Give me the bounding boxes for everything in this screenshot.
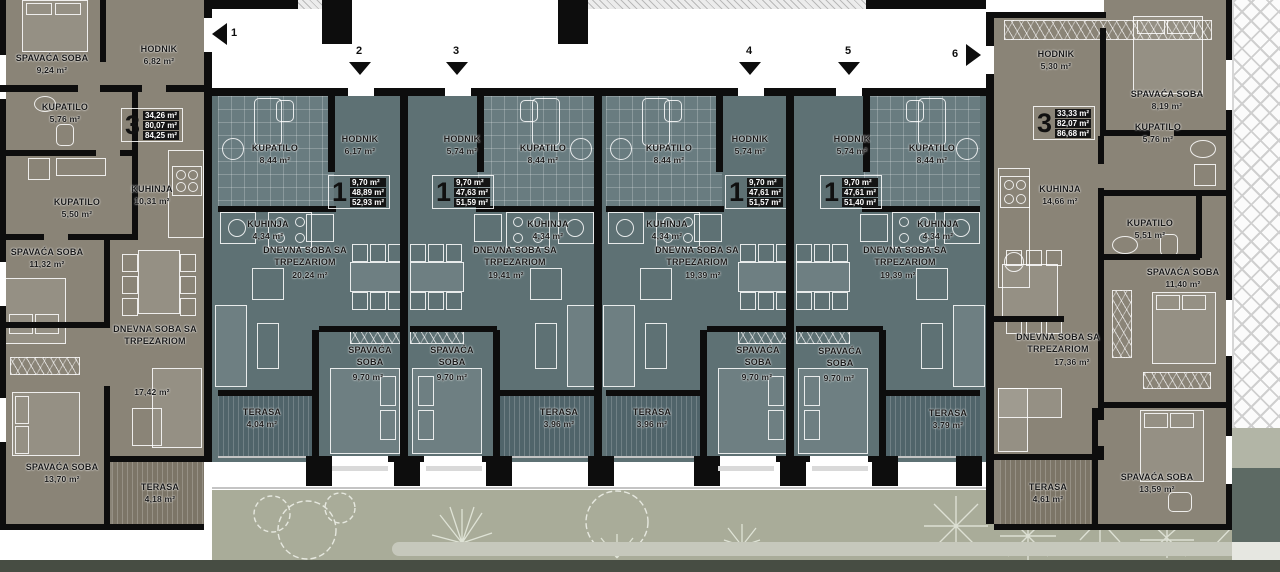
- wall: [994, 316, 1064, 322]
- chair-furniture: [796, 292, 812, 310]
- chair-furniture: [446, 292, 462, 310]
- door-opening: [986, 46, 994, 74]
- dining-table-furniture: [350, 262, 404, 292]
- marker-arrow-2: [349, 62, 371, 75]
- chair-furniture: [370, 244, 386, 262]
- balcony-pillar: [306, 456, 332, 486]
- wall: [994, 454, 1096, 460]
- chair-furniture: [352, 292, 368, 310]
- marker-number: 2: [356, 45, 362, 57]
- balcony-pillar: [588, 456, 614, 486]
- wall: [986, 12, 994, 524]
- vanity-furniture: [56, 158, 106, 176]
- wall: [994, 12, 1106, 18]
- dining-table-furniture: [410, 262, 464, 292]
- window: [424, 456, 482, 462]
- wall: [866, 0, 986, 9]
- room-label-bedroom: SPAVAĆA SOBA: [422, 344, 482, 368]
- room-label-bedroom: SPAVAĆA SOBA11,40 m²: [1138, 266, 1228, 290]
- room-label-hallway: HODNIK6,82 m²: [114, 43, 204, 67]
- wall: [104, 240, 110, 328]
- toilet-furniture: [276, 100, 294, 122]
- chair-furniture: [758, 244, 774, 262]
- terrace-edge: [606, 456, 706, 458]
- pillow-furniture: [768, 410, 784, 440]
- dining-table-furniture: [138, 250, 180, 314]
- chair-furniture: [796, 244, 812, 262]
- marker-arrow-6: [966, 44, 981, 66]
- marker-number: 4: [746, 45, 752, 57]
- wall: [312, 330, 319, 462]
- room-label-bathroom: KUPATILO5,51 m²: [1105, 217, 1195, 241]
- bed-furniture: [4, 278, 66, 344]
- window: [1226, 436, 1232, 484]
- chair-furniture: [814, 244, 830, 262]
- wall: [1092, 408, 1098, 530]
- chair-furniture: [758, 292, 774, 310]
- room-label-kitchen: KUHINJA4,34 m²: [622, 218, 712, 242]
- unit-type-badge: 1 9,70 m²47,63 m²51,59 m²: [432, 175, 494, 209]
- marker-arrow-3: [446, 62, 468, 75]
- door-opening: [1098, 420, 1104, 446]
- fridge-furniture: [474, 214, 502, 242]
- chair-furniture: [122, 276, 138, 294]
- room-label-bedroom: SPAVAĆA SOBA13,59 m²: [1112, 471, 1202, 495]
- wall: [994, 524, 1232, 530]
- chair-furniture: [740, 292, 756, 310]
- dining-table-furniture: [796, 262, 850, 292]
- room-label-kitchen: KUHINJA4,34 m²: [223, 218, 313, 242]
- room-label-terrace: TERASA4,04 m²: [217, 406, 307, 430]
- pillow-furniture: [418, 410, 434, 440]
- window: [1226, 300, 1232, 356]
- room-label-bedroom: SPAVAĆA SOBA: [340, 344, 400, 368]
- wall: [606, 206, 724, 212]
- room-label-living: DNEVNA SOBA SA TRPEZARIOM: [1008, 331, 1108, 355]
- room-label-bathroom: KUPATILO8,44 m²: [230, 142, 320, 166]
- window-sill: [812, 466, 868, 471]
- unit-type-badge: 1 9,70 m²47,61 m²51,57 m²: [725, 175, 787, 209]
- wall: [410, 326, 497, 332]
- chair-furniture: [1026, 250, 1042, 266]
- pillow-furniture: [1144, 413, 1168, 428]
- window: [330, 456, 388, 462]
- wall: [494, 390, 594, 396]
- toilet-furniture: [56, 124, 74, 146]
- room-label-living: DNEVNA SOBA SA TRPEZARIOM: [863, 244, 947, 268]
- wall: [218, 206, 336, 212]
- wall: [212, 0, 298, 9]
- balcony-pillar: [486, 456, 512, 486]
- room-label-terrace: TERASA3,96 m²: [514, 406, 604, 430]
- room-label-bathroom: KUPATILO5,50 m²: [32, 196, 122, 220]
- room-label-bedroom: SPAVAĆA SOBA13,70 m²: [17, 461, 107, 485]
- wall: [0, 85, 204, 92]
- chair-furniture: [410, 244, 426, 262]
- wall: [1098, 254, 1200, 260]
- pillow-furniture: [1167, 20, 1195, 34]
- washing-machine-furniture: [1194, 164, 1216, 186]
- room-label-living: DNEVNA SOBA SA TRPEZARIOM: [473, 244, 557, 268]
- coffee-table-furniture: [535, 323, 557, 369]
- wall: [493, 330, 500, 462]
- marker-arrow-4: [739, 62, 761, 75]
- wall: [1104, 190, 1232, 196]
- chair-furniture: [122, 254, 138, 272]
- wall: [700, 330, 707, 462]
- room-area-living: 17,42 m²: [107, 386, 197, 398]
- terrace-edge: [218, 456, 318, 458]
- window: [718, 456, 776, 462]
- unit-type-number: 3: [1037, 108, 1052, 138]
- garden-path: [392, 542, 1280, 556]
- unit-type-badge: 1 9,70 m²47,61 m²51,40 m²: [820, 175, 882, 209]
- pillow-furniture: [15, 396, 29, 424]
- marker-number: 1: [231, 27, 237, 39]
- exterior-notch: [994, 0, 1104, 12]
- room-label-bathroom: KUPATILO8,44 m²: [624, 142, 714, 166]
- marker-arrow-5: [838, 62, 860, 75]
- unit-type-number: 1: [436, 177, 451, 207]
- wardrobe-furniture: [10, 357, 80, 375]
- room-area-bedroom: 9,70 m²: [794, 372, 884, 384]
- room-area-living: 17,36 m²: [1027, 356, 1117, 368]
- wall: [218, 390, 318, 396]
- wall: [0, 234, 138, 240]
- chair-furniture: [428, 292, 444, 310]
- pillow-furniture: [1137, 20, 1165, 34]
- marker-number: 3: [453, 45, 459, 57]
- wall: [400, 88, 408, 462]
- wall: [322, 0, 352, 44]
- window: [810, 456, 868, 462]
- wall: [880, 390, 980, 396]
- wall: [796, 326, 883, 332]
- room-label-bedroom: SPAVAĆA SOBA: [728, 344, 788, 368]
- balcony-pillar: [956, 456, 982, 486]
- door-opening: [348, 88, 374, 96]
- room-label-living: DNEVNA SOBA SA TRPEZARIOM: [655, 244, 739, 268]
- balcony-pillar: [694, 456, 720, 486]
- chair-furniture: [446, 244, 462, 262]
- chair-furniture: [740, 244, 756, 262]
- wall: [110, 456, 204, 462]
- wall: [558, 0, 588, 44]
- room-label-bathroom: KUPATILO8,44 m²: [887, 142, 977, 166]
- room-label-hallway: HODNIK6,17 m²: [315, 133, 405, 157]
- window-sill: [718, 466, 774, 471]
- coffee-table-furniture: [257, 323, 279, 369]
- room-area-living: 19,39 m²: [658, 269, 748, 281]
- room-label-living: DNEVNA SOBA SA TRPEZARIOM: [105, 323, 205, 347]
- room-label-hallway: HODNIK5,74 m²: [417, 133, 507, 157]
- wall: [1196, 196, 1202, 258]
- dining-table-furniture: [1002, 264, 1058, 318]
- chair-furniture: [1046, 250, 1062, 266]
- chair-furniture: [180, 298, 196, 316]
- ground-strip: [0, 560, 1280, 572]
- pillow-furniture: [55, 3, 81, 15]
- room-label-bathroom: KUPATILO8,44 m²: [498, 142, 588, 166]
- door-opening: [738, 88, 764, 96]
- unit-type-badge: 3 33,33 m²82,07 m²86,68 m²: [1033, 106, 1095, 140]
- side-lawn-block: [1232, 428, 1280, 468]
- wall: [319, 326, 406, 332]
- sofa-furniture: [998, 388, 1028, 452]
- room-label-bedroom: SPAVAĆA SOBA9,24 m²: [2, 52, 102, 76]
- room-label-kitchen: KUHINJA4,34 m²: [503, 218, 593, 242]
- room-label-living: DNEVNA SOBA SA TRPEZARIOM: [263, 244, 347, 268]
- room-label-bedroom: SPAVAĆA SOBA8,19 m²: [1122, 88, 1212, 112]
- fridge-furniture: [860, 214, 888, 242]
- chair-furniture: [122, 298, 138, 316]
- pillow-furniture: [26, 3, 52, 15]
- room-label-bedroom: SPAVAĆA SOBA11,32 m²: [0, 246, 94, 270]
- room-label-hallway: HODNIK5,30 m²: [1011, 48, 1101, 72]
- wall: [0, 322, 110, 328]
- room-label-terrace: TERASA3,79 m²: [903, 407, 993, 431]
- room-area-bedroom: 9,70 m²: [407, 371, 497, 383]
- pillow-furniture: [1156, 295, 1180, 310]
- coffee-table-furniture: [921, 323, 943, 369]
- sofa-furniture: [953, 305, 985, 387]
- door-opening: [836, 88, 862, 96]
- wall: [879, 330, 886, 462]
- balcony-rail: [212, 487, 986, 489]
- pillow-furniture: [1182, 295, 1206, 310]
- marker-number: 6: [952, 48, 958, 60]
- sofa-furniture: [215, 305, 247, 387]
- door-opening: [204, 18, 212, 52]
- pillow-furniture: [380, 410, 396, 440]
- chair-furniture: [814, 292, 830, 310]
- sofa-furniture: [603, 305, 635, 387]
- washing-machine-furniture: [28, 158, 50, 180]
- unit-type-number: 1: [729, 177, 744, 207]
- wardrobe-furniture: [1143, 372, 1211, 389]
- pillow-furniture: [804, 410, 820, 440]
- window: [1226, 60, 1232, 110]
- entrance-alcove: [352, 0, 558, 40]
- window-sill: [426, 466, 482, 471]
- desk-furniture: [1168, 492, 1192, 512]
- room-label-hallway: HODNIK5,74 m²: [705, 133, 795, 157]
- room-area-living: 19,41 m²: [461, 269, 551, 281]
- door-opening: [445, 88, 471, 96]
- door-opening: [44, 234, 68, 240]
- room-label-hallway: HODNIK5,74 m²: [807, 133, 897, 157]
- door-opening: [78, 85, 100, 92]
- chair-furniture: [832, 292, 848, 310]
- room-label-bathroom: KUPATILO5,76 m²: [1113, 121, 1203, 145]
- room-area-living: 19,39 m²: [853, 269, 943, 281]
- unit-type-badge: 1 9,70 m²48,89 m²52,93 m²: [328, 175, 390, 209]
- floor-plan: SPAVAĆA SOBA9,24 m² HODNIK6,82 m² KUPATI…: [0, 0, 1280, 572]
- room-label-terrace: TERASA3,96 m²: [607, 406, 697, 430]
- side-dark-block: [1232, 468, 1280, 542]
- unit-type-number: 1: [824, 177, 839, 207]
- side-light-block: [1232, 542, 1280, 560]
- unit-type-number: 3: [125, 110, 140, 140]
- door-opening: [96, 150, 120, 156]
- chair-furniture: [180, 276, 196, 294]
- wardrobe-furniture: [1112, 290, 1132, 358]
- unit-type-number: 1: [332, 177, 347, 207]
- room-label-bathroom: KUPATILO5,76 m²: [20, 101, 110, 125]
- armchair-furniture: [132, 408, 162, 446]
- door-opening: [142, 85, 166, 92]
- coffee-table-furniture: [645, 323, 667, 369]
- wall: [204, 0, 212, 462]
- wall: [0, 524, 204, 530]
- toilet-furniture: [520, 100, 538, 122]
- balcony-pillar: [780, 456, 806, 486]
- pillow-furniture: [15, 426, 29, 454]
- chair-furniture: [370, 292, 386, 310]
- room-label-kitchen: KUHINJA4,34 m²: [893, 218, 983, 242]
- room-label-kitchen: KUHINJA14,66 m²: [1015, 183, 1105, 207]
- marker-number: 5: [845, 45, 851, 57]
- balcony-pillar: [394, 456, 420, 486]
- toilet-furniture: [906, 100, 924, 122]
- room-label-terrace: TERASA4,18 m²: [115, 481, 205, 505]
- chair-furniture: [832, 244, 848, 262]
- chair-furniture: [1006, 250, 1022, 266]
- chair-furniture: [428, 244, 444, 262]
- wall: [594, 88, 602, 462]
- room-label-terrace: TERASA4,61 m²: [1003, 481, 1093, 505]
- wall: [786, 88, 794, 462]
- wall: [707, 326, 794, 332]
- window: [0, 398, 6, 442]
- marker-arrow-1: [212, 23, 227, 45]
- wall: [606, 390, 706, 396]
- paving-herringbone: [1232, 0, 1280, 428]
- wall: [1098, 402, 1232, 408]
- toilet-furniture: [664, 100, 682, 122]
- unit-type-badge: 3 34,26 m²80,07 m²84,25 m²: [121, 108, 183, 142]
- chair-furniture: [410, 292, 426, 310]
- balcony-pillar: [872, 456, 898, 486]
- room-area-living: 20,24 m²: [265, 269, 355, 281]
- pillow-furniture: [1170, 413, 1194, 428]
- room-label-bedroom: SPAVAĆA SOBA: [810, 345, 870, 369]
- chair-furniture: [352, 244, 368, 262]
- chair-furniture: [180, 254, 196, 272]
- wall: [1100, 28, 1106, 132]
- window-sill: [332, 466, 388, 471]
